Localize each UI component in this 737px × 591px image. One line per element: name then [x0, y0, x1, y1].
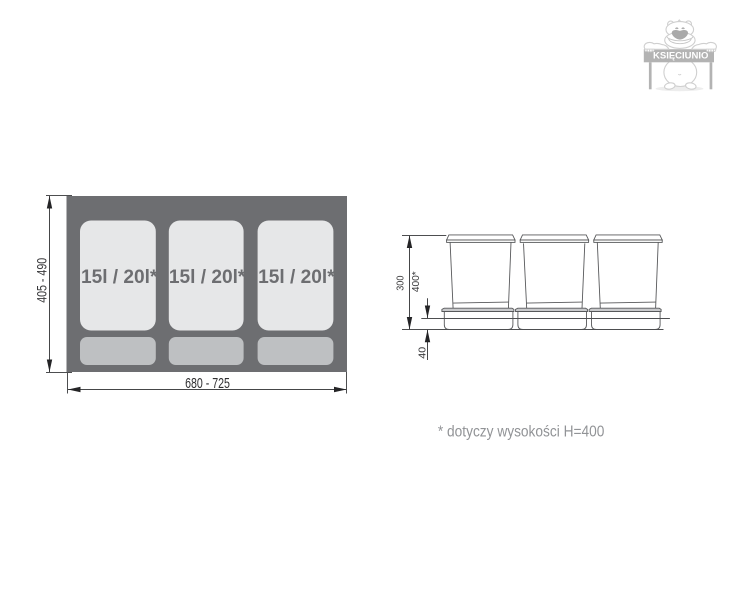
svg-text:15l / 20l*: 15l / 20l* — [81, 266, 158, 288]
svg-text:15l / 20l*: 15l / 20l* — [169, 266, 246, 288]
svg-text:15l / 20l*: 15l / 20l* — [258, 266, 335, 288]
svg-text:KSIĘCIUNIO: KSIĘCIUNIO — [653, 51, 708, 62]
svg-text:680 - 725: 680 - 725 — [185, 376, 230, 392]
svg-text:400*: 400* — [411, 271, 422, 292]
svg-text:40: 40 — [417, 346, 428, 358]
svg-text:405 - 490: 405 - 490 — [34, 258, 50, 303]
svg-text:* dotyczy wysokości H=400: * dotyczy wysokości H=400 — [438, 423, 605, 440]
svg-text:300: 300 — [396, 275, 407, 291]
